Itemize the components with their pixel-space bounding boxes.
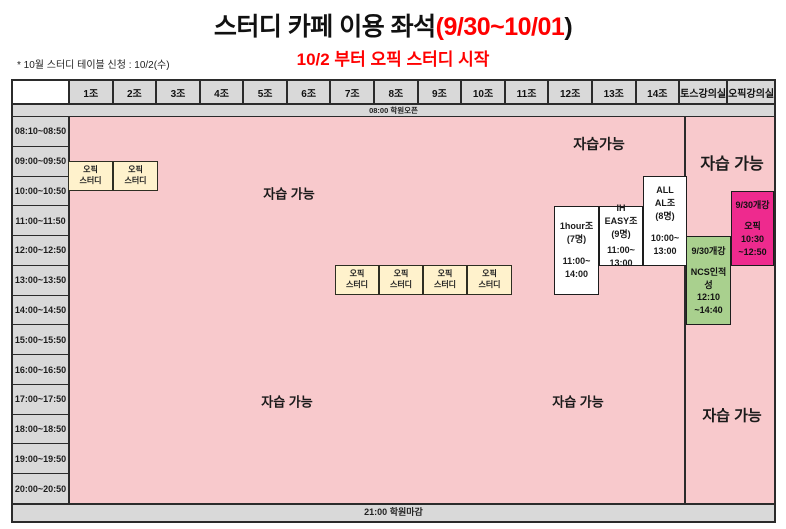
page-title: 스터디 카페 이용 좌석(9/30~10/01) [0, 7, 786, 43]
class-open-date: 9/30개강 [735, 199, 769, 212]
group-name2: AL조 [655, 197, 675, 210]
opic-class-cell: 9/30개강 오픽 10:30 ~12:50 [731, 191, 774, 266]
column-header-group-14: 14조 [637, 81, 679, 103]
open-time-banner: 08:00 학원오픈 [13, 105, 774, 117]
column-header-group-11: 11조 [506, 81, 548, 103]
group-time-start: 11:00~ [607, 244, 635, 257]
opic-study-cell-group2: 오픽 스터디 [113, 161, 158, 191]
schedule-table: 1조 2조 3조 4조 5조 6조 7조 8조 9조 10조 11조 12조 1… [11, 79, 776, 523]
column-header-group-7: 7조 [331, 81, 373, 103]
class-name: NCS인적성 [687, 266, 730, 291]
time-slot: 15:00~15:50 [13, 325, 68, 355]
column-header-group-5: 5조 [244, 81, 286, 103]
reservation-note: * 10월 스터디 테이블 신청 : 10/2(수) [17, 56, 170, 71]
opic-study-line1: 오픽 [128, 165, 143, 176]
group-name: IH [617, 202, 626, 215]
free-study-label-lecture-top: 자습 가능 [700, 150, 763, 174]
group-time-start: 11:00~ [563, 255, 591, 268]
class-time-start: 10:30 [741, 233, 764, 246]
group-name2: EASY조 [605, 215, 638, 228]
column-header-group-2: 2조 [114, 81, 156, 103]
class-open-date: 9/30개강 [691, 245, 725, 258]
opic-study-cell-group1: 오픽 스터디 [68, 161, 113, 191]
corner-cell [13, 81, 68, 103]
time-slot: 11:00~11:50 [13, 206, 68, 236]
time-slot: 14:00~14:50 [13, 296, 68, 326]
opic-study-line1: 오픽 [394, 269, 409, 280]
opic-study-cell-group10: 오픽 스터디 [467, 265, 512, 295]
opic-study-line2: 스터디 [434, 280, 456, 291]
free-study-label-main-top: 자습 가능 [263, 184, 314, 203]
ih-easy-group-cell: IH EASY조 (9명) 11:00~ 13:00 [599, 206, 643, 266]
column-header-group-4: 4조 [201, 81, 243, 103]
opic-study-line2: 스터디 [478, 280, 500, 291]
group-time-end: 14:00 [565, 268, 588, 281]
class-time-start: 12:10 [697, 291, 720, 304]
opic-study-line1: 오픽 [83, 165, 98, 176]
time-slot: 08:10~08:50 [13, 117, 68, 147]
time-slot: 12:00~12:50 [13, 236, 68, 266]
class-time-end: ~14:40 [694, 304, 722, 317]
column-header-group-12: 12조 [549, 81, 591, 103]
opic-study-line1: 오픽 [438, 269, 453, 280]
opic-study-line1: 오픽 [350, 269, 365, 280]
opic-study-cell-group8: 오픽 스터디 [379, 265, 423, 295]
group-size: (8명) [655, 210, 674, 223]
group-time-end: 13:00 [653, 245, 676, 258]
column-header-group-13: 13조 [593, 81, 635, 103]
time-slot: 20:00~20:50 [13, 474, 68, 503]
opic-study-cell-group7: 오픽 스터디 [335, 265, 379, 295]
opic-study-line2: 스터디 [390, 280, 412, 291]
title-dates: (9/30~10/01 [436, 13, 565, 41]
column-header-row: 1조 2조 3조 4조 5조 6조 7조 8조 9조 10조 11조 12조 1… [13, 81, 774, 105]
column-header-toss-room: 토스강의실 [680, 81, 726, 103]
all-al-group-cell: ALL AL조 (8명) 10:00~ 13:00 [643, 176, 687, 266]
time-slot: 19:00~19:50 [13, 444, 68, 474]
title-text: 스터디 카페 이용 좌석 [214, 13, 436, 41]
opic-study-line2: 스터디 [79, 176, 101, 187]
schedule-body: 08:10~08:50 09:00~09:50 10:00~10:50 11:0… [13, 117, 774, 503]
opic-study-line2: 스터디 [346, 280, 368, 291]
free-study-label-mid-bottom: 자습 가능 [552, 392, 603, 411]
time-slot: 10:00~10:50 [13, 177, 68, 207]
column-header-group-10: 10조 [462, 81, 504, 103]
time-slot: 09:00~09:50 [13, 147, 68, 177]
time-slot: 17:00~17:50 [13, 385, 68, 415]
time-column: 08:10~08:50 09:00~09:50 10:00~10:50 11:0… [13, 117, 70, 503]
close-time-banner: 21:00 학원마감 [13, 503, 774, 521]
time-slot: 18:00~18:50 [13, 415, 68, 445]
group-size: (9명) [611, 228, 630, 241]
free-study-label-mid-top: 자습가능 [573, 134, 625, 154]
free-study-label-lecture-bottom: 자습 가능 [702, 405, 761, 426]
opic-study-cell-group9: 오픽 스터디 [423, 265, 467, 295]
class-name: 오픽 [744, 220, 761, 233]
free-study-label-main-bottom: 자습 가능 [261, 392, 312, 411]
opic-study-line1: 오픽 [482, 269, 497, 280]
group-time-end: 13:00 [609, 257, 632, 270]
column-header-group-6: 6조 [288, 81, 330, 103]
time-slot: 13:00~13:50 [13, 266, 68, 296]
group-name: ALL [656, 184, 674, 197]
opic-study-line2: 스터디 [124, 176, 146, 187]
time-slot: 16:00~16:50 [13, 355, 68, 385]
group-name: 1hour조 [560, 220, 593, 233]
group-time-start: 10:00~ [651, 232, 679, 245]
group-size: (7명) [567, 233, 586, 246]
column-header-group-9: 9조 [419, 81, 461, 103]
column-header-group-1: 1조 [70, 81, 112, 103]
class-time-end: ~12:50 [738, 246, 766, 259]
column-header-group-8: 8조 [375, 81, 417, 103]
column-header-group-3: 3조 [157, 81, 199, 103]
title-close-paren: ) [564, 13, 572, 41]
column-header-opic-room: 오픽강의실 [728, 81, 774, 103]
ncs-class-cell: 9/30개강 NCS인적성 12:10 ~14:40 [686, 236, 731, 325]
one-hour-group-cell: 1hour조 (7명) 11:00~ 14:00 [554, 206, 599, 295]
